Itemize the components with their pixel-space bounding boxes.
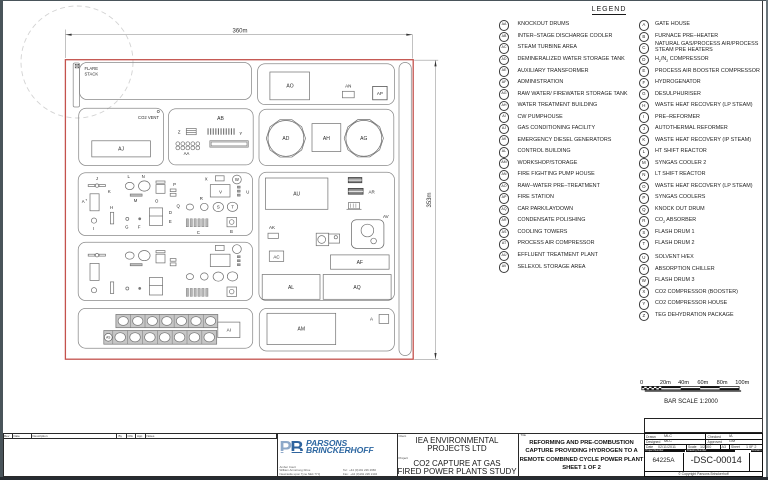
svg-text:AB: AB [217,116,224,122]
svg-text:K: K [108,189,111,194]
svg-text:AU: AU [293,192,300,198]
svg-text:W: W [235,177,240,182]
svg-text:AK: AK [269,225,275,230]
svg-text:AF: AF [357,260,363,266]
svg-text:AA: AA [184,151,190,156]
svg-text:40m: 40m [678,380,689,386]
svg-text:Q: Q [177,203,181,208]
svg-text:AO: AO [286,83,293,89]
svg-text:A: A [82,199,85,204]
svg-text:A: A [370,317,373,322]
svg-text:D: D [169,210,172,215]
svg-text:FLARE: FLARE [85,66,99,71]
svg-text:CO2 VENT: CO2 VENT [138,115,159,120]
svg-text:AI: AI [227,328,231,333]
svg-text:80m: 80m [717,380,728,386]
svg-text:Y: Y [239,131,242,136]
svg-text:V: V [219,189,222,194]
svg-text:C: C [197,230,200,235]
svg-text:M: M [134,198,138,203]
svg-text:P: P [173,182,176,187]
svg-text:AH: AH [323,136,330,142]
svg-text:AQ: AQ [353,285,360,291]
svg-text:AG: AG [360,136,367,142]
svg-text:S: S [217,205,220,210]
svg-text:T: T [231,205,234,210]
svg-text:E: E [169,219,172,224]
svg-text:U: U [246,190,249,195]
svg-text:AV: AV [383,214,389,219]
svg-text:100m: 100m [735,380,749,386]
svg-text:353m: 353m [427,192,433,207]
svg-text:O: O [155,198,159,203]
svg-text:AJ: AJ [118,147,124,153]
svg-text:AD: AD [282,136,289,142]
svg-text:60m: 60m [697,380,708,386]
svg-text:20m: 20m [660,380,671,386]
svg-text:AN: AN [345,84,351,89]
svg-text:AM: AM [298,327,306,333]
svg-text:AC: AC [273,255,280,260]
svg-text:N: N [142,174,145,179]
svg-text:R: R [200,196,203,201]
svg-text:I: I [93,226,94,231]
svg-text:STACK: STACK [85,72,99,77]
svg-text:AP: AP [377,91,383,96]
svg-text:L: L [128,174,131,179]
svg-text:H: H [110,205,113,210]
svg-text:X: X [205,176,208,181]
svg-text:B: B [230,229,233,234]
svg-text:360m: 360m [232,28,247,34]
svg-text:Z: Z [178,129,181,134]
svg-text:AL: AL [288,285,294,291]
svg-text:AS: AS [106,336,110,340]
svg-text:T: T [85,198,87,202]
svg-text:F: F [138,225,141,230]
svg-text:BAR SCALE 1:2000: BAR SCALE 1:2000 [664,399,718,405]
svg-text:0: 0 [640,380,643,386]
svg-text:AR: AR [369,190,376,195]
svg-text:G: G [125,225,129,230]
svg-text:J: J [96,176,98,181]
